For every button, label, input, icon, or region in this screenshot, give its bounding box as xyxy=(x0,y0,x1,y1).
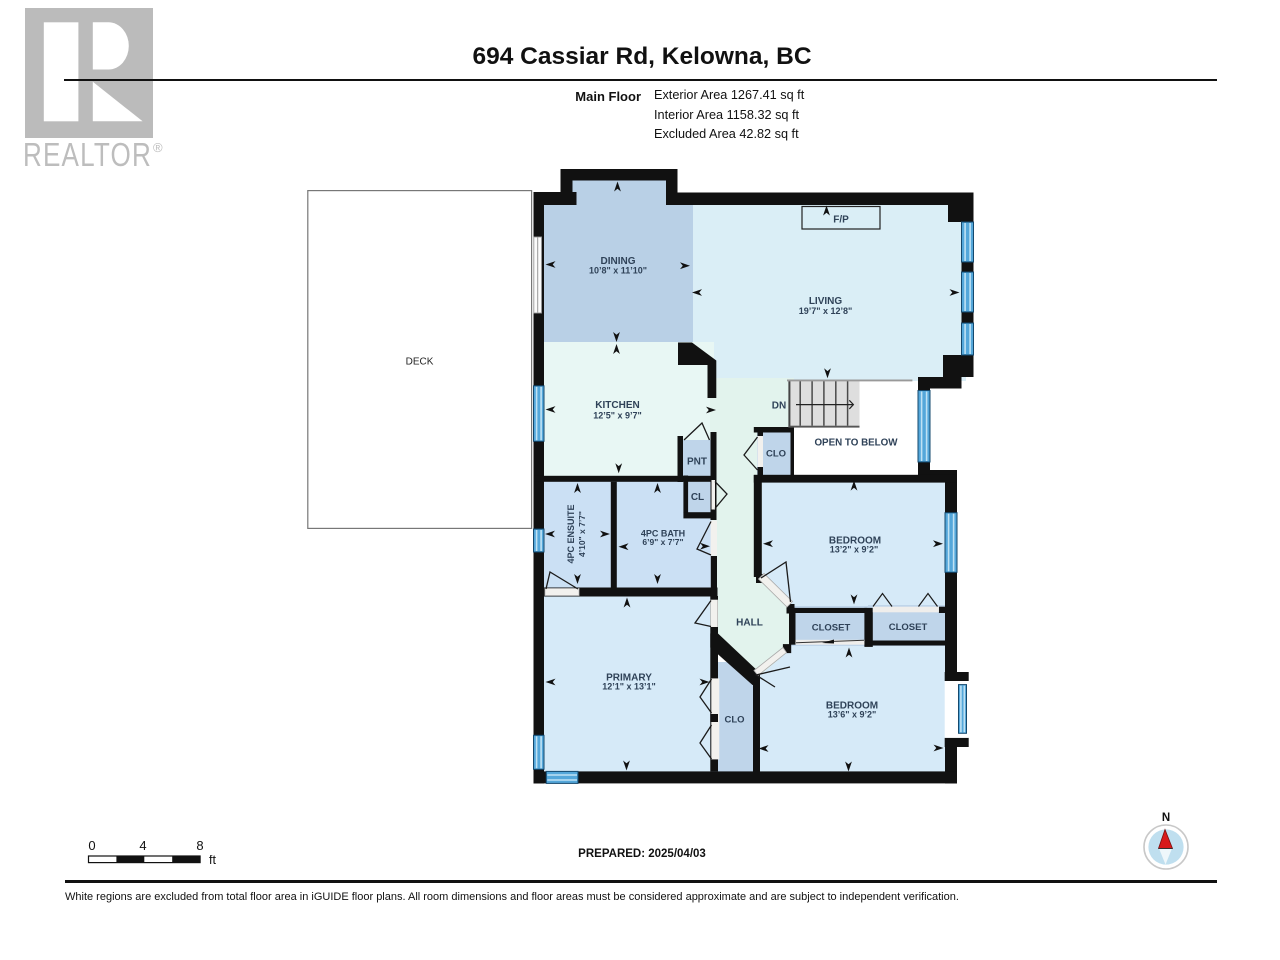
svg-text:CL: CL xyxy=(691,492,704,503)
svg-text:PNT: PNT xyxy=(687,457,707,468)
svg-text:CLO: CLO xyxy=(724,715,744,726)
svg-text:13’2" x 9’2": 13’2" x 9’2" xyxy=(830,545,879,555)
svg-text:DN: DN xyxy=(772,401,786,412)
svg-text:CLO: CLO xyxy=(766,449,786,460)
svg-text:KITCHEN: KITCHEN xyxy=(595,400,639,411)
svg-text:10’8" x 11’10": 10’8" x 11’10" xyxy=(589,266,647,276)
svg-text:N: N xyxy=(1162,812,1170,824)
svg-text:CLOSET: CLOSET xyxy=(812,623,851,634)
svg-text:12’5" x 9’7": 12’5" x 9’7" xyxy=(593,411,642,421)
svg-text:4’10" x 7’7": 4’10" x 7’7" xyxy=(577,511,587,557)
svg-text:4PC ENSUITE: 4PC ENSUITE xyxy=(566,504,576,563)
svg-text:13’6" x 9’2": 13’6" x 9’2" xyxy=(828,710,877,720)
svg-text:HALL: HALL xyxy=(736,618,763,629)
svg-text:F/P: F/P xyxy=(833,215,849,226)
svg-text:OPEN TO BELOW: OPEN TO BELOW xyxy=(814,438,898,449)
svg-text:CLOSET: CLOSET xyxy=(889,622,928,633)
svg-text:19’7" x 12’8": 19’7" x 12’8" xyxy=(799,306,853,316)
svg-text:DECK: DECK xyxy=(406,357,434,368)
svg-text:12’1" x 13’1": 12’1" x 13’1" xyxy=(602,682,656,692)
svg-text:6’9" x 7’7": 6’9" x 7’7" xyxy=(642,537,683,547)
